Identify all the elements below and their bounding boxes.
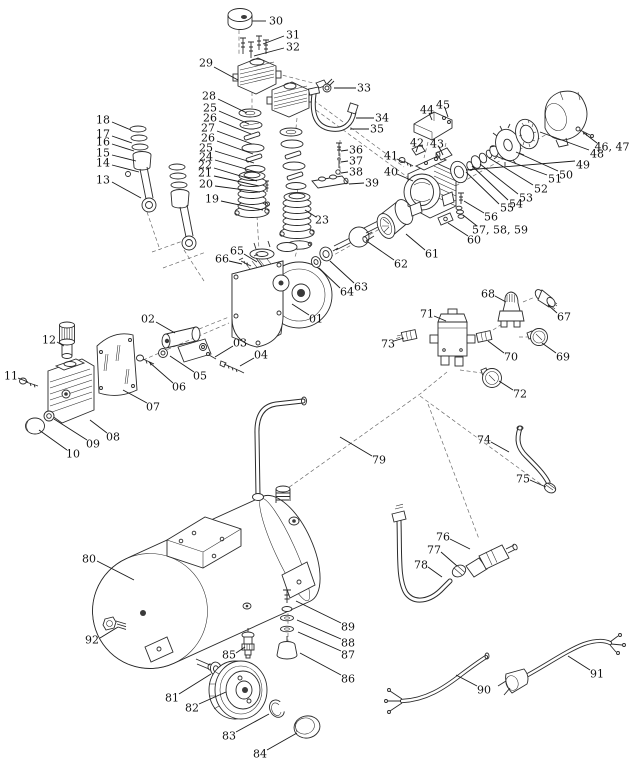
part-label-20: 20 — [199, 178, 213, 191]
part-label-48: 48 — [590, 148, 604, 161]
leader-line-72 — [499, 381, 513, 390]
leader-line-91 — [568, 656, 590, 670]
part-label-30: 30 — [269, 15, 283, 28]
leader-line-50 — [516, 152, 558, 171]
filter-gasket-ring — [44, 411, 54, 421]
retaining-ring — [269, 699, 285, 718]
part-label-91: 91 — [590, 668, 604, 681]
part-label-87: 87 — [341, 649, 355, 662]
part-label-09: 09 — [86, 438, 100, 451]
leader-line-78 — [428, 567, 442, 577]
part-label-43: 43 — [430, 138, 444, 151]
leader-line-55 — [466, 172, 499, 204]
leader-line-32 — [254, 48, 284, 56]
part-label-51: 51 — [548, 173, 562, 186]
leader-line-74 — [491, 442, 509, 452]
motor-lead-wire — [385, 653, 490, 714]
part-label-39: 39 — [365, 177, 379, 190]
part-label-03: 03 — [233, 337, 247, 350]
part-label-70: 70 — [504, 351, 518, 364]
part-label-81: 81 — [165, 692, 179, 705]
part-label-33: 33 — [357, 82, 371, 95]
piston-assembly-front — [169, 164, 196, 250]
leader-line-18 — [112, 122, 131, 130]
part-label-11: 11 — [4, 370, 18, 383]
valve-plate-stack-front — [280, 128, 306, 190]
leader-line-16 — [112, 144, 134, 151]
hub-cap — [292, 714, 322, 741]
part-label-84: 84 — [253, 748, 267, 761]
leader-line-89 — [296, 601, 341, 623]
leader-line-36 — [341, 150, 348, 151]
part-label-80: 80 — [82, 553, 96, 566]
leader-line-13 — [112, 182, 141, 198]
part-label-32: 32 — [286, 41, 300, 54]
exploded-diagram-page: 3031322928252627262524222120191817161514… — [0, 0, 640, 768]
part-label-72: 72 — [513, 388, 527, 401]
vibration-grommet — [228, 9, 252, 30]
cylinder-head-rear — [233, 58, 281, 94]
part-label-65: 65 — [230, 245, 244, 258]
filter-back-plate — [97, 334, 137, 396]
part-label-76: 76 — [436, 531, 450, 544]
leader-line-75 — [530, 480, 546, 487]
part-label-82: 82 — [185, 702, 199, 715]
part-label-86: 86 — [341, 673, 355, 686]
part-label-04: 04 — [254, 349, 268, 362]
part-label-85: 85 — [222, 649, 236, 662]
leader-line-29 — [214, 67, 238, 80]
leader-line-87 — [298, 632, 341, 651]
part-label-38: 38 — [349, 166, 363, 179]
part-label-10: 10 — [66, 448, 80, 461]
leader-line-06 — [149, 362, 173, 383]
leader-line-56 — [464, 201, 484, 213]
part-label-01: 01 — [309, 313, 323, 326]
leader-line-02 — [156, 322, 175, 333]
unloader-manifold — [312, 175, 348, 188]
part-label-07: 07 — [146, 401, 160, 414]
part-label-71: 71 — [420, 308, 434, 321]
diagram-canvas: 3031322928252627262524222120191817161514… — [0, 0, 640, 768]
leader-line-61 — [406, 234, 425, 250]
part-label-52: 52 — [534, 183, 548, 196]
leader-line-37 — [341, 161, 348, 162]
part-label-29: 29 — [199, 57, 213, 70]
power-cord-with-plug — [498, 634, 626, 696]
part-label-42: 42 — [410, 137, 424, 150]
part-label-73: 73 — [381, 338, 395, 351]
leader-line-81 — [179, 674, 211, 694]
stator-bolt — [399, 158, 413, 168]
drain-valve — [242, 628, 254, 658]
leader-line-39 — [349, 183, 364, 184]
leader-line-07 — [123, 390, 147, 403]
tank-outlet-nipple — [276, 486, 290, 503]
part-label-13: 13 — [96, 174, 110, 187]
part-label-64: 64 — [340, 286, 354, 299]
leader-line-25 — [215, 151, 254, 163]
piston-assembly-rear — [126, 126, 157, 212]
filter-housing — [48, 359, 94, 423]
leader-line-69 — [542, 343, 556, 353]
part-label-78: 78 — [414, 559, 428, 572]
part-label-44: 44 — [420, 104, 434, 117]
part-label-12: 12 — [42, 334, 56, 347]
part-label-45: 45 — [436, 99, 450, 112]
leader-line-10 — [39, 430, 67, 450]
leader-line-03 — [215, 346, 233, 357]
leader-line-76 — [450, 539, 470, 549]
pressure-gauge-side — [527, 329, 548, 346]
quick-connect-fitting — [533, 288, 557, 309]
wheel — [209, 661, 267, 719]
leader-line-09 — [54, 419, 87, 440]
leader-line-86 — [300, 653, 341, 675]
part-label-55: 55 — [500, 202, 514, 215]
part-label-77: 77 — [427, 544, 441, 557]
part-label-56: 56 — [484, 211, 498, 224]
part-label-05: 05 — [193, 370, 207, 383]
part-label-06: 06 — [172, 381, 186, 394]
leader-line-60 — [448, 223, 468, 236]
part-label-62: 62 — [394, 258, 408, 271]
part-label-66: 66 — [215, 253, 229, 266]
leader-line-08 — [90, 420, 107, 433]
manifold-bolt-pins — [336, 143, 342, 174]
part-label-14: 14 — [96, 157, 110, 170]
leader-line-38 — [341, 172, 348, 173]
part-label-61: 61 — [425, 248, 439, 261]
leader-line-90 — [456, 675, 477, 686]
check-valve — [450, 543, 518, 579]
leader-line-62 — [368, 242, 394, 260]
leader-line-04 — [240, 358, 254, 366]
part-label-88: 88 — [341, 637, 355, 650]
tank-handle — [253, 397, 307, 501]
part-label-75: 75 — [516, 473, 530, 486]
part-label-19: 19 — [205, 193, 219, 206]
part-label-90: 90 — [477, 684, 491, 697]
leader-line-70 — [488, 341, 504, 353]
part-label-92: 92 — [85, 634, 99, 647]
part-label-08: 08 — [106, 431, 120, 444]
pivot-bracket-assembly — [162, 327, 211, 362]
leader-line-28 — [218, 99, 247, 113]
head-bolts — [240, 36, 269, 58]
leader-line-88 — [297, 620, 341, 639]
pressure-gauge-front — [481, 368, 502, 388]
leader-line-77 — [441, 552, 457, 566]
leader-line-17 — [112, 136, 132, 143]
part-label-23: 23 — [315, 214, 329, 227]
leader-line-68 — [495, 296, 506, 302]
part-label-35: 35 — [370, 123, 384, 136]
outlet-fitting — [476, 331, 492, 343]
cylinder-head-front — [267, 82, 314, 117]
part-label-60: 60 — [467, 234, 481, 247]
pressure-regulator — [498, 292, 524, 327]
part-label-89: 89 — [341, 621, 355, 634]
part-label-41: 41 — [384, 150, 398, 163]
part-label-49: 49 — [576, 159, 590, 172]
leader-line-15 — [112, 155, 136, 161]
leader-line-66 — [229, 261, 242, 264]
cylinder-rear — [235, 172, 269, 218]
leader-line-84 — [267, 733, 297, 750]
part-label-74: 74 — [477, 434, 491, 447]
leader-line-63 — [330, 261, 354, 283]
pipe-nut-upper — [543, 481, 558, 495]
part-label-67: 67 — [557, 311, 571, 324]
part-label-68: 68 — [481, 288, 495, 301]
part-label-02: 02 — [141, 313, 155, 326]
part-label-63: 63 — [354, 281, 368, 294]
part-label-79: 79 — [372, 454, 386, 467]
motor-end-cover — [542, 91, 587, 147]
air-filter-cartridge — [60, 322, 75, 359]
part-label-83: 83 — [222, 730, 236, 743]
part-label-69: 69 — [556, 351, 570, 364]
part-label-40: 40 — [384, 166, 398, 179]
part-label-18: 18 — [96, 114, 110, 127]
cylinder-front — [280, 193, 314, 250]
